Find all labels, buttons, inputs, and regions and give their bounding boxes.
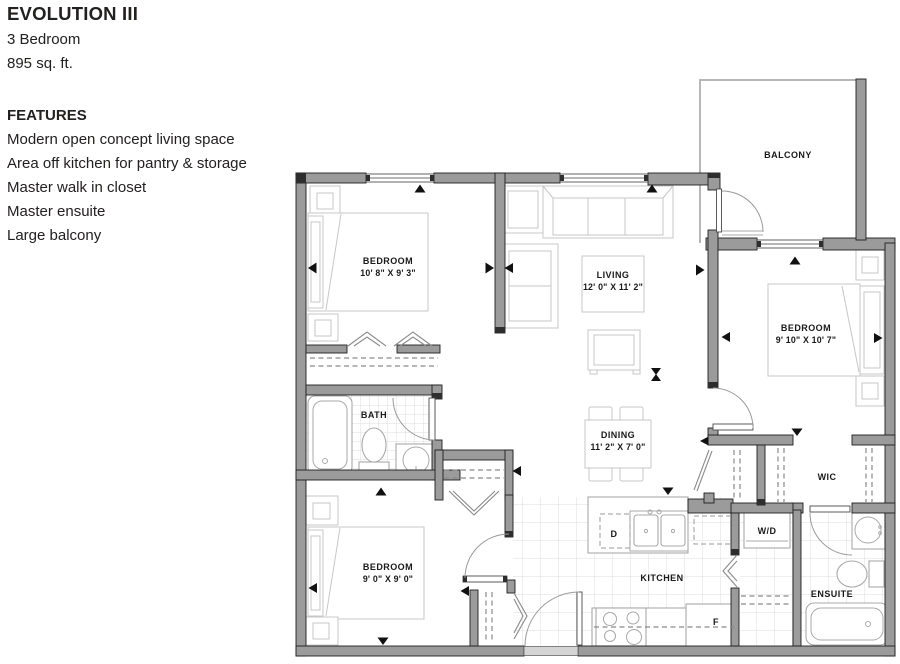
dishwasher-label: D xyxy=(611,529,618,539)
floorplan-page: { "panel": { "title": "EVOLUTION III", "… xyxy=(0,0,900,664)
nightstand-icon xyxy=(310,186,340,215)
dining-label: DINING xyxy=(601,430,635,440)
bedroom3-label: BEDROOM xyxy=(363,562,413,572)
balcony-railing xyxy=(700,80,856,243)
balcony-label: BALCONY xyxy=(764,150,812,160)
toilet-icon xyxy=(869,561,884,587)
window xyxy=(366,174,434,182)
hanger-icon xyxy=(394,332,432,346)
chair-icon xyxy=(589,467,612,481)
bedroom3-dims: 9' 0" X 9' 0" xyxy=(363,574,413,584)
bathtub-icon xyxy=(308,396,352,474)
bath-label: BATH xyxy=(361,410,387,420)
dining-dims: 11' 2" X 7' 0" xyxy=(591,442,646,452)
bed-icon xyxy=(308,527,424,619)
ensuite-label: ENSUITE xyxy=(811,589,853,599)
balcony-wall xyxy=(856,79,866,240)
laundry-label: W/D xyxy=(758,526,777,536)
wic-label: WIC xyxy=(818,472,837,482)
nightstand-icon xyxy=(306,617,338,645)
balcony-door xyxy=(717,189,764,235)
ottoman-icon xyxy=(588,330,640,370)
master-dims: 9' 10" X 10' 7" xyxy=(776,335,837,345)
fridge-icon xyxy=(686,604,732,648)
nightstand-icon xyxy=(856,250,884,280)
hanger-icon xyxy=(348,332,386,346)
living-label: LIVING xyxy=(597,270,630,280)
kitchen-label: KITCHEN xyxy=(640,573,683,583)
chair-icon xyxy=(620,407,643,421)
chair-icon xyxy=(589,407,612,421)
nightstand-icon xyxy=(306,496,338,525)
living-dims: 12' 0" X 11' 2" xyxy=(583,282,643,292)
nightstand-icon xyxy=(308,314,338,341)
bathtub-icon xyxy=(806,603,888,645)
nightstand-icon xyxy=(856,376,884,406)
floorplan-drawing: BALCONY BEDROOM 10' 8" X 9' 3" LIVING 12… xyxy=(0,0,900,664)
master-door xyxy=(713,388,753,430)
sofa-icon xyxy=(543,186,673,238)
window xyxy=(560,174,648,182)
bedroom1-label: BEDROOM xyxy=(363,256,413,266)
side-table-icon xyxy=(503,186,543,233)
window xyxy=(757,240,823,248)
section-marker xyxy=(651,368,661,375)
pivot-door-icon xyxy=(697,451,712,491)
master-label: BEDROOM xyxy=(781,323,831,333)
bedroom3-door xyxy=(463,534,509,582)
living-furniture xyxy=(502,186,673,374)
bedroom1-dims: 10' 8" X 9' 3" xyxy=(360,268,415,278)
fridge-label: F xyxy=(713,617,719,627)
chair-icon xyxy=(620,467,643,481)
